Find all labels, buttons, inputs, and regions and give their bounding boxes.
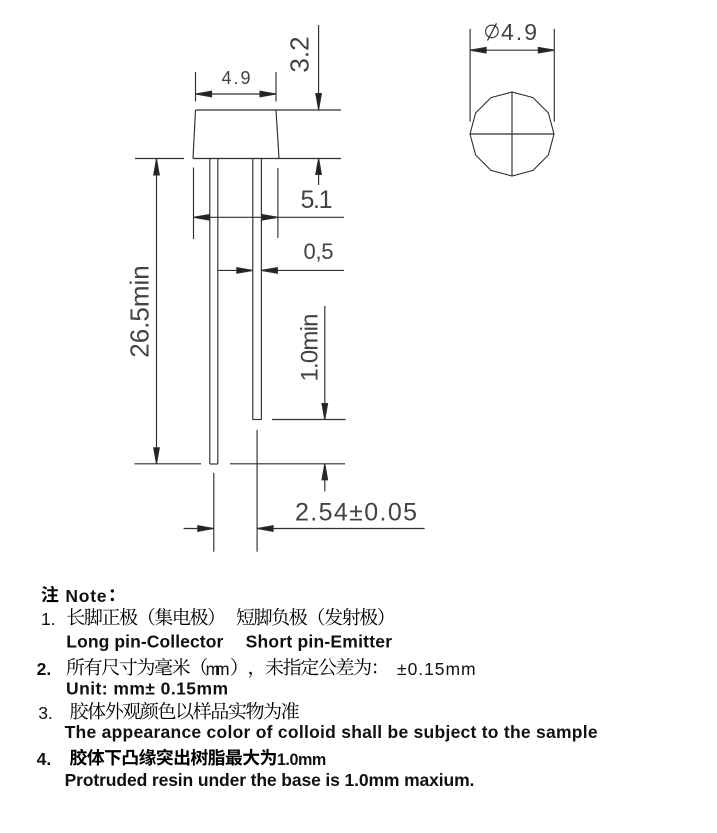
- svg-text:3.: 3.: [38, 703, 53, 723]
- svg-text:mm: mm: [206, 659, 230, 679]
- svg-text:1.0mm: 1.0mm: [277, 751, 326, 769]
- svg-text:Unit: mm± 0.15mm: Unit: mm± 0.15mm: [66, 679, 228, 699]
- svg-text:Long pin-Collector: Long pin-Collector: [66, 632, 223, 652]
- svg-text:3.2: 3.2: [285, 36, 315, 72]
- svg-text:4.9: 4.9: [501, 19, 537, 45]
- svg-text:2.: 2.: [37, 659, 52, 679]
- svg-text:Note: Note: [65, 586, 107, 606]
- svg-text:Short pin-Emitter: Short pin-Emitter: [246, 632, 393, 652]
- svg-text:5.1: 5.1: [301, 186, 333, 214]
- svg-text:2.54±0.05: 2.54±0.05: [295, 499, 417, 527]
- svg-text:4.9: 4.9: [222, 68, 251, 88]
- svg-text:1.0min: 1.0min: [297, 314, 324, 382]
- svg-text:1.: 1.: [41, 609, 56, 629]
- svg-text:The appearance color of colloi: The appearance color of colloid shall be…: [65, 722, 598, 742]
- svg-text:0,5: 0,5: [304, 239, 334, 264]
- svg-text:4.: 4.: [37, 749, 52, 769]
- svg-text:Protruded resin under the base: Protruded resin under the base is 1.0mm …: [65, 770, 475, 790]
- svg-text:±0.15mm: ±0.15mm: [397, 659, 476, 679]
- svg-text:26.5min: 26.5min: [125, 265, 155, 358]
